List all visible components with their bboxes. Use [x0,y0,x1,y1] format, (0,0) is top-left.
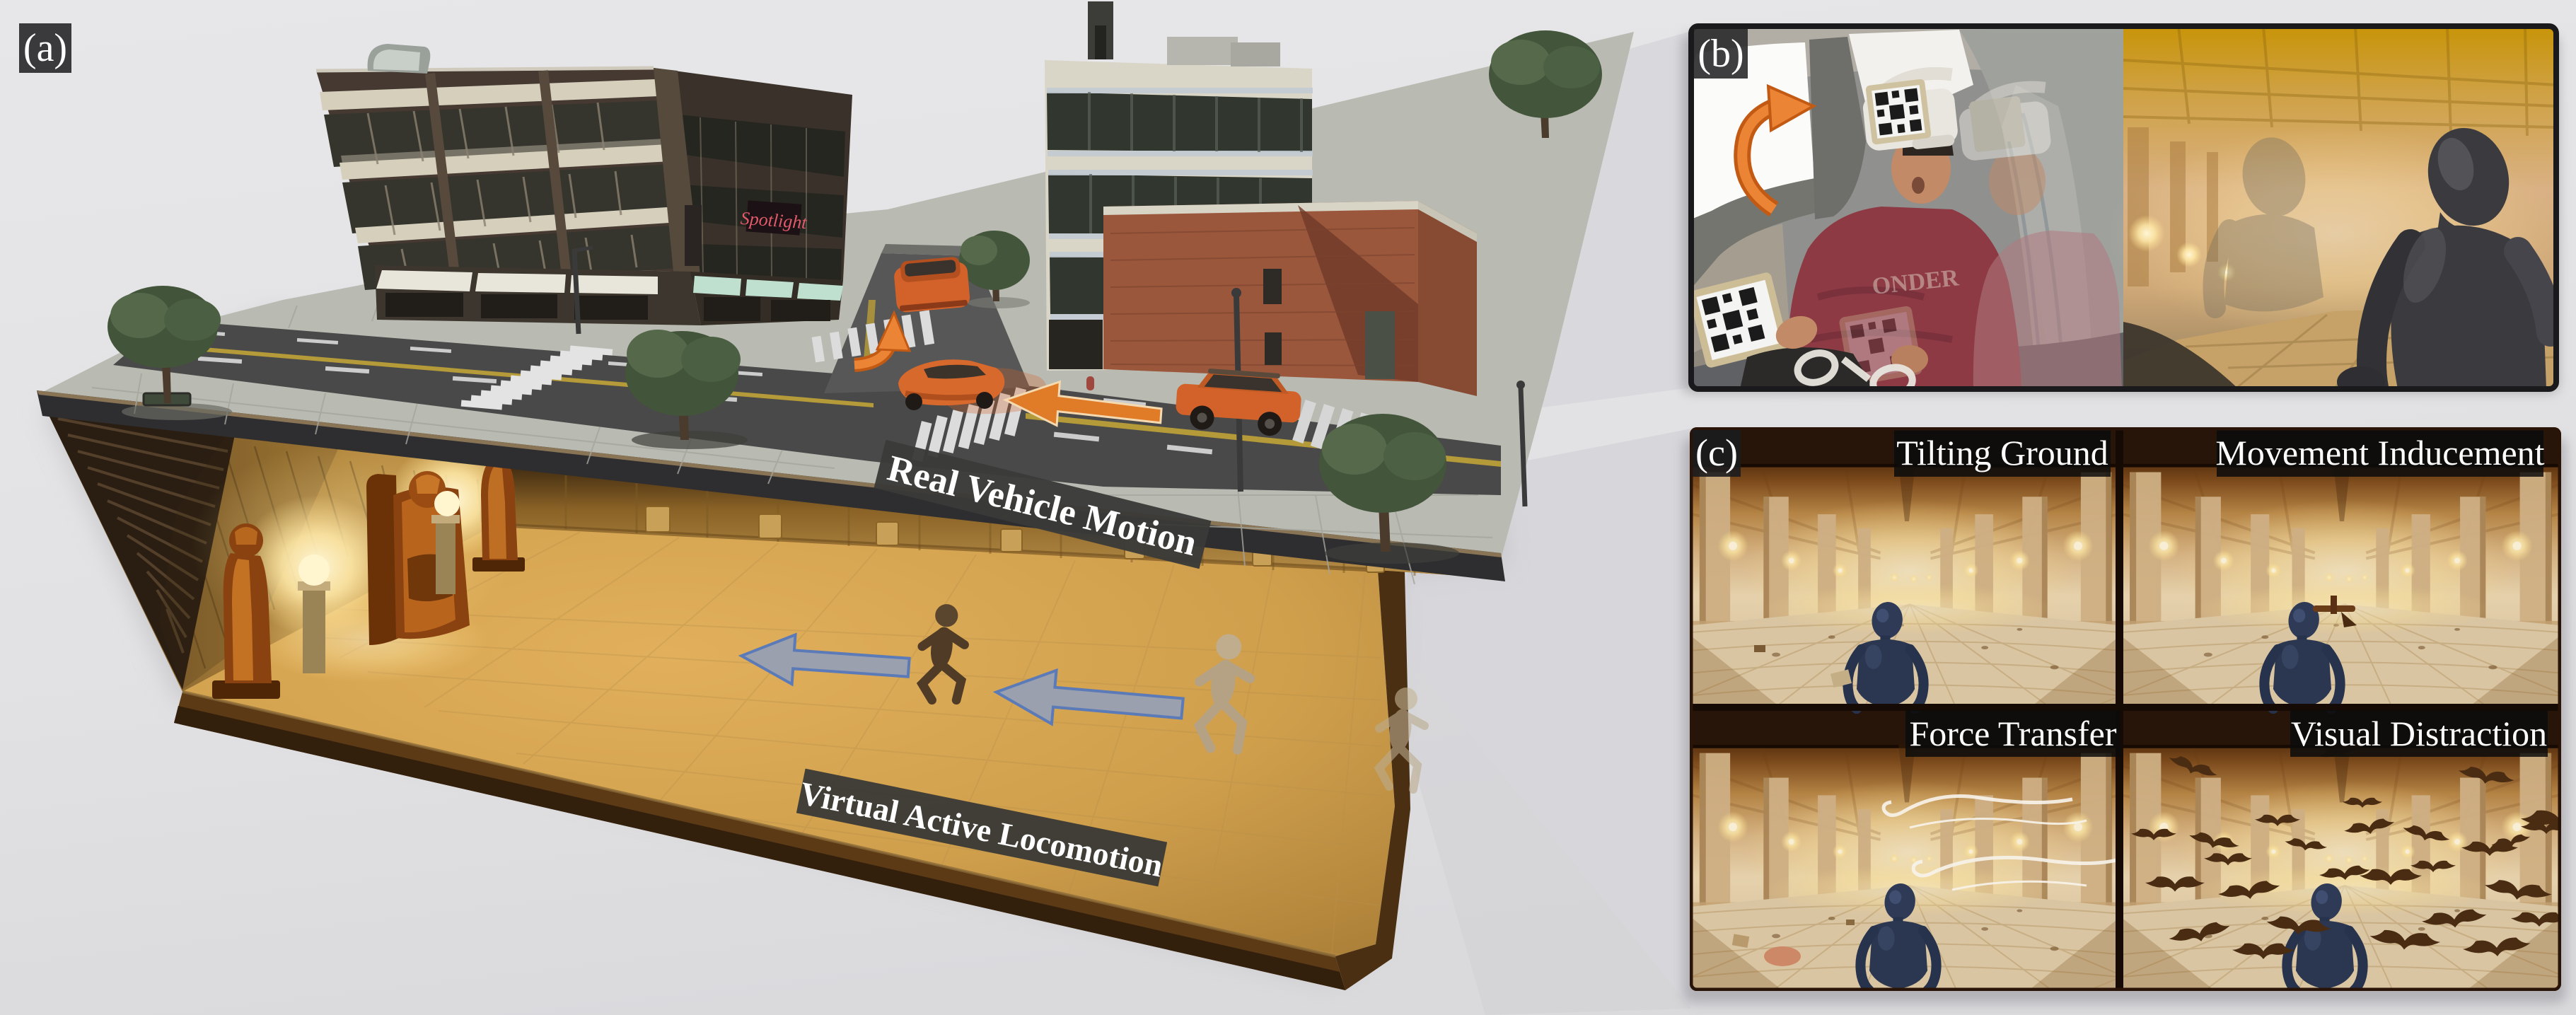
svg-text:Movement Inducement: Movement Inducement [2215,433,2544,472]
svg-text:(b): (b) [1698,32,1744,76]
svg-text:(a): (a) [23,26,67,70]
svg-text:Tilting Ground: Tilting Ground [1896,433,2108,472]
svg-text:Visual Distraction: Visual Distraction [2291,714,2547,753]
svg-text:Force Transfer: Force Transfer [1909,714,2116,753]
svg-text:(c): (c) [1695,431,1738,474]
